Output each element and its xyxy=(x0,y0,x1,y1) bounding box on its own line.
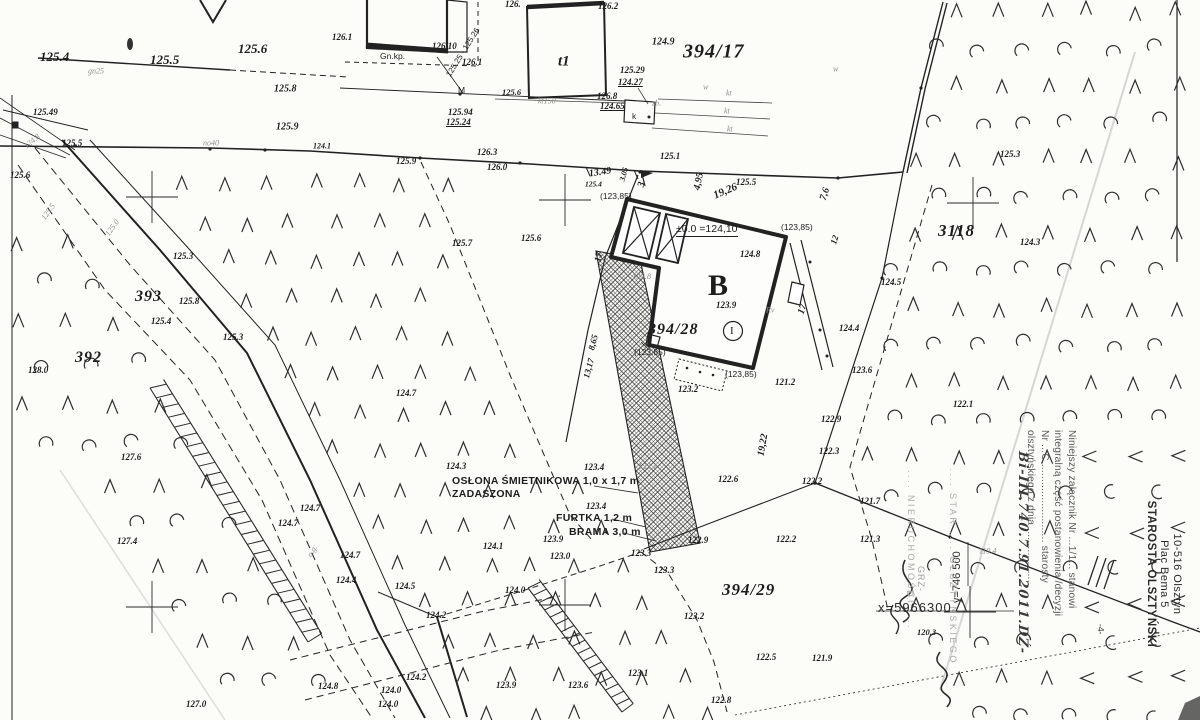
dimensions-label: 19,26 xyxy=(712,181,739,202)
utilities-label: 125.5 xyxy=(39,202,57,222)
spot-heights-label: 124.4 xyxy=(336,575,356,585)
spot-heights-label: 124.2 xyxy=(406,672,426,682)
spot-heights-label: 126.8 xyxy=(597,91,617,101)
spot-heights-label: 125.4 xyxy=(151,316,171,326)
dimensions-label: 19,22 xyxy=(756,433,771,457)
annotations-label: FURTKA 1,2 m xyxy=(556,512,632,524)
spot-heights-label: 125.4 xyxy=(40,49,69,65)
spot-heights-label: 124.0 xyxy=(378,699,398,709)
spot-heights-label: 122.1 xyxy=(953,399,973,409)
plot-numbers-label: 393 xyxy=(135,288,162,306)
attachment-stamp-line: Nr ...C........................... staro… xyxy=(1038,430,1052,720)
spot-heights-label: 123.6 xyxy=(852,365,872,375)
spot-heights-label: 123.4 xyxy=(586,501,606,511)
spot-heights-label: 124.2 xyxy=(426,610,446,620)
dimensions-label: 13,17 xyxy=(581,357,596,379)
spot-heights-label: 124.1 xyxy=(483,541,503,551)
annotations-label: -4- xyxy=(1096,624,1106,634)
annotations-label: ±0.0 =124,10 xyxy=(676,223,738,237)
spot-heights-label: 123.2 xyxy=(678,384,698,394)
spot-heights-label: 124.7 xyxy=(396,388,416,398)
spot-heights-label: 124.0 xyxy=(381,685,401,695)
spot-heights-label: 123.0 xyxy=(550,551,570,561)
dimensions-label: 3 xyxy=(636,181,648,189)
spot-heights-label: 123.9 xyxy=(716,300,736,310)
dimensions-label: 8,65 xyxy=(586,333,600,351)
spot-heights-label: 121.3 xyxy=(860,534,880,544)
office-stamp-city: 10-516 Olsztyn xyxy=(1170,428,1183,720)
spot-heights-label: 121.2 xyxy=(775,377,795,387)
spot-heights-label: 124.7 xyxy=(300,503,320,513)
spot-heights-label: 122.8 xyxy=(711,695,731,705)
spot-heights-label: 124.3 xyxy=(1020,237,1040,247)
spot-heights-label: 125.24 xyxy=(446,117,471,127)
spot-heights-label: 123.6 xyxy=(568,680,588,690)
spot-heights-label: 125.29 xyxy=(620,65,645,75)
spot-heights-label: 123.3 xyxy=(631,548,651,558)
spot-heights-label: 123.9 xyxy=(496,680,516,690)
utilities-label: Gn.kp. xyxy=(380,51,405,61)
spot-heights-label: 123.1 xyxy=(628,668,648,678)
faint-stamp-text: .... STAR .... OLSZTYŃSKIEGO xyxy=(948,468,958,720)
spot-heights-label: 127.6 xyxy=(121,452,141,462)
office-stamp-address: Plac Bema 5 xyxy=(1157,428,1170,720)
spot-heights-label: 124.3 xyxy=(446,461,466,471)
utilities-label: w xyxy=(833,65,838,74)
spot-heights-label: 123.3 xyxy=(654,565,674,575)
annotations-label: ZADASZONA xyxy=(452,488,521,500)
spot-heights-label: 125.8 xyxy=(179,296,199,306)
utilities-label: kt150 xyxy=(538,97,556,106)
spot-heights-label: 124.5 xyxy=(395,581,415,591)
plot-numbers-label: B xyxy=(708,269,728,303)
spot-heights-label: 124.7 xyxy=(340,550,360,560)
spot-heights-label: 125.6 xyxy=(238,41,267,57)
spot-heights-label: 122.9 xyxy=(821,414,841,424)
spot-heights-label: 125.49 xyxy=(33,107,58,117)
utilities-label: 125.0 xyxy=(103,218,121,238)
dimensions-label: 17 xyxy=(593,251,606,263)
plot-numbers-label: 394/29 xyxy=(722,580,775,600)
plot-numbers-label: t1 xyxy=(558,54,570,71)
plot-numbers-label: 394/17 xyxy=(683,41,745,64)
annotations-label: OSŁONA ŚMIETNIKOWA 1,0 x 1,7 m xyxy=(452,475,639,487)
spot-heights-label: 125.9 xyxy=(396,156,416,166)
faint-stamp-text: .... NIERUCHOMOŚCI .... xyxy=(906,470,916,720)
spot-heights-label: 126.2 xyxy=(598,1,618,11)
spot-heights-label: 125.5 xyxy=(150,52,179,68)
utilities-label: 125.25 · 125.26 xyxy=(444,26,481,78)
spot-heights-label: 125.3 xyxy=(173,251,193,261)
utilities-label: 124.8 xyxy=(22,132,42,150)
spot-heights-label: 120.3 xyxy=(917,627,936,637)
spot-heights-label: 125.5 xyxy=(736,177,756,187)
spot-heights-label: 123.8 xyxy=(632,271,651,281)
spot-heights-label: 123.9 xyxy=(543,534,563,544)
utilities-label: Rv xyxy=(766,306,774,315)
spot-heights-label: 125.9 xyxy=(276,122,299,133)
spot-heights-label: 125.3 xyxy=(1000,149,1020,159)
spot-heights-label: 123.1 xyxy=(638,461,657,471)
spot-heights-label: 126. xyxy=(505,0,521,9)
dimensions-label: 7,6 xyxy=(818,186,832,201)
plot-numbers-label: 394/28 xyxy=(648,321,698,339)
utilities-label: kt xyxy=(724,107,730,116)
spot-heights-label: 119.4 xyxy=(979,547,996,556)
spot-heights-label: 124.4 xyxy=(839,323,859,333)
spot-heights-label: 123.4 xyxy=(584,462,604,472)
spot-heights-label: 122.2 xyxy=(802,476,822,486)
spot-heights-label: 125.6 xyxy=(502,87,521,97)
levels-paren-label: (123,85) xyxy=(600,191,632,201)
spot-heights-label: 124.9 xyxy=(652,37,675,48)
spot-heights-label: 124.7 xyxy=(278,518,298,528)
attachment-stamp-line: Niniejszy załącznik Nr ...1/1... stanowi xyxy=(1065,430,1079,720)
spot-heights-label: 125.5 xyxy=(62,138,82,148)
spot-heights-label: 122.6 xyxy=(718,474,738,484)
dimensions-label: 12 xyxy=(828,234,840,246)
spot-heights-label: 124.8 xyxy=(318,681,338,691)
dimensions-label: 13.49 xyxy=(588,165,612,179)
utilities-label: gn25 xyxy=(88,67,104,76)
spot-heights-label: 122.9 xyxy=(688,535,708,545)
spot-heights-label: 124.0 xyxy=(505,585,525,595)
utilities-label: kt xyxy=(727,125,733,134)
utilities-label: zb. xyxy=(652,99,661,108)
plot-numbers-label: I xyxy=(730,325,734,337)
dimensions-label: 17 xyxy=(796,303,810,316)
spot-heights-label: 122.2 xyxy=(776,534,796,544)
spot-heights-label: 121.7 xyxy=(860,496,880,506)
spot-heights-label: 125.7 xyxy=(452,238,472,248)
spot-heights-label: 124.65 xyxy=(600,101,625,111)
annotations-label: BRAMA 3,0 m xyxy=(569,526,641,538)
annotations-label: GRZ- xyxy=(916,566,926,592)
spot-heights-label: 127.0 xyxy=(186,699,206,709)
levels-paren-label: (123,85) xyxy=(781,222,813,232)
cadastral-map-scan: 394/17394/28394/293933923118Bt1I125.4125… xyxy=(0,0,1200,720)
utilities-label: no40 xyxy=(203,139,219,148)
utilities-label: kt xyxy=(726,89,732,98)
spot-heights-label: 126.10 xyxy=(432,41,457,51)
utilities-label: w xyxy=(703,83,708,92)
spot-heights-label: 124.1 xyxy=(313,142,331,151)
spot-heights-label: 125.4 xyxy=(585,180,602,189)
spot-heights-label: 122.3 xyxy=(819,446,839,456)
spot-heights-label: 126.0 xyxy=(487,162,507,172)
attachment-stamp: Niniejszy załącznik Nr ...1/1... stanowi… xyxy=(1024,430,1078,720)
spot-heights-label: 125.8 xyxy=(274,84,297,95)
spot-heights-label: 124.8 xyxy=(740,249,760,259)
spot-heights-label: 128.0 xyxy=(28,365,48,375)
office-stamp: 10-516 Olsztyn Plac Bema 5 STAROSTA OLSZ… xyxy=(1144,428,1183,720)
dimensions-label: 4,95 xyxy=(692,172,706,191)
attachment-stamp-line: integralną część postanowienia /decyzji xyxy=(1051,430,1065,720)
utilities-label: M xyxy=(458,85,465,95)
handwritten-case-number: Bi-III.740.7.91.2011.DŹ- xyxy=(1015,450,1030,720)
spot-heights-label: 122.5 xyxy=(756,652,776,662)
spot-heights-label: 126.1 xyxy=(332,32,352,42)
spot-heights-label: 125.3 xyxy=(223,332,243,342)
spot-heights-label: 127.4 xyxy=(117,536,137,546)
plot-numbers-label: 3118 xyxy=(938,221,975,241)
levels-paren-label: (123,85) xyxy=(725,369,757,379)
spot-heights-label: 124.5 xyxy=(881,277,901,287)
dimensions-label: 3.05 xyxy=(618,166,630,182)
spot-heights-label: 125.94 xyxy=(448,107,473,117)
utilities-label: o.g. xyxy=(305,543,319,558)
spot-heights-label: 125.1 xyxy=(660,151,680,161)
spot-heights-label: 125.6 xyxy=(521,233,541,243)
spot-heights-label: 124.27 xyxy=(618,77,643,87)
spot-heights-label: 121.9 xyxy=(812,653,832,663)
spot-heights-label: 123.2 xyxy=(684,611,704,621)
office-stamp-title: STAROSTA OLSZTYŃSKI xyxy=(1145,501,1157,648)
spot-heights-label: 126.1 xyxy=(462,57,482,67)
spot-heights-label: 126.3 xyxy=(477,147,497,157)
spot-heights-label: 125.6 xyxy=(10,170,30,180)
levels-paren-label: (123,85) xyxy=(634,347,666,357)
plot-numbers-label: 392 xyxy=(75,349,102,367)
utilities-label: k xyxy=(632,111,636,121)
